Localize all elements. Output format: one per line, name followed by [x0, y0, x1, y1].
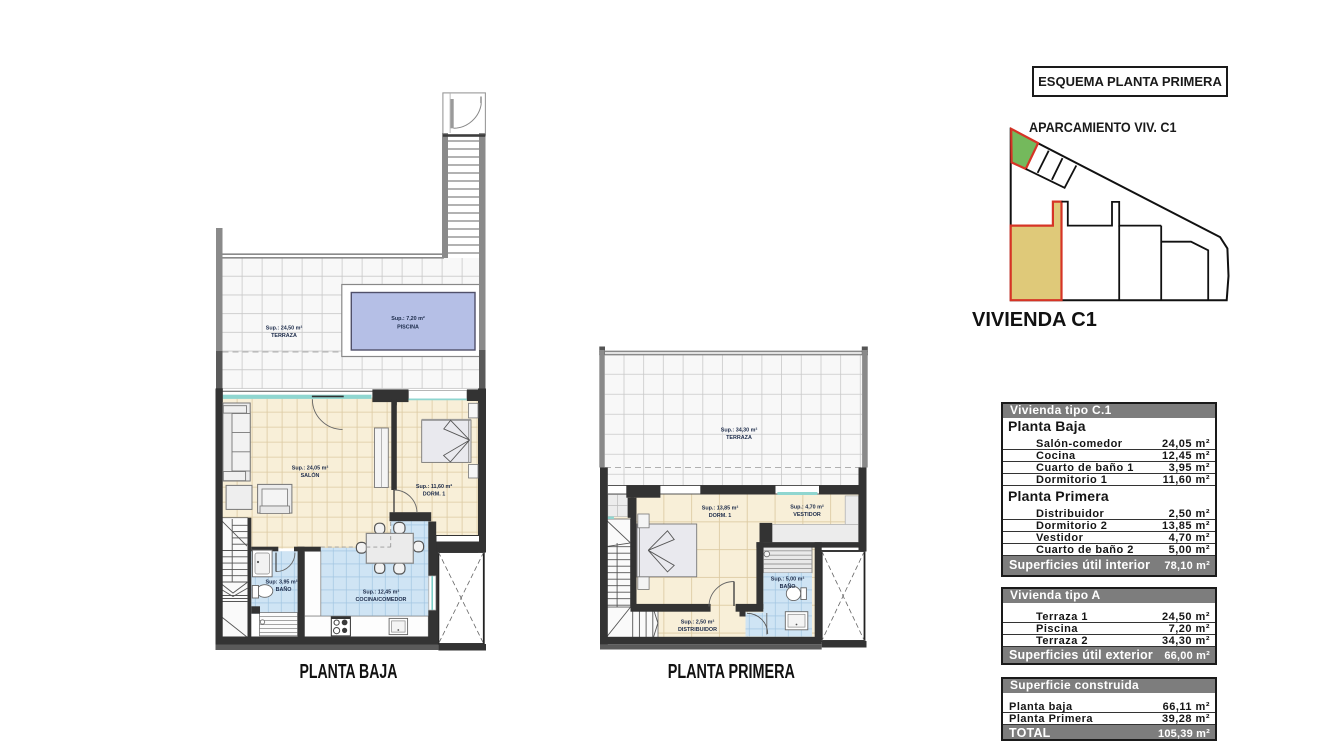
svg-text:Sup.: 5,00 m²: Sup.: 5,00 m²: [771, 577, 805, 583]
svg-text:PISCINA: PISCINA: [397, 325, 419, 331]
svg-text:DORM. 1: DORM. 1: [709, 513, 731, 519]
svg-text:Sup.: 24,50 m²: Sup.: 24,50 m²: [266, 326, 303, 332]
svg-text:DORM. 1: DORM. 1: [423, 492, 445, 498]
svg-text:Sup.: 34,30 m²: Sup.: 34,30 m²: [721, 428, 758, 434]
svg-text:Sup.: 12,45 m²: Sup.: 12,45 m²: [363, 590, 400, 596]
svg-text:BAÑO: BAÑO: [780, 583, 796, 590]
svg-text:VESTIDOR: VESTIDOR: [793, 512, 821, 518]
svg-text:DISTRIBUIDOR: DISTRIBUIDOR: [678, 627, 717, 633]
svg-text:Sup: 3,95 m²: Sup: 3,95 m²: [265, 580, 297, 586]
svg-text:Sup.: 11,60 m²: Sup.: 11,60 m²: [416, 484, 452, 490]
svg-text:SALÓN: SALÓN: [301, 471, 320, 479]
svg-text:COCINA/COMEDOR: COCINA/COMEDOR: [356, 597, 407, 603]
svg-text:TERRAZA: TERRAZA: [271, 333, 297, 339]
svg-text:TERRAZA: TERRAZA: [726, 435, 752, 441]
svg-text:Sup.: 13,85 m²: Sup.: 13,85 m²: [702, 506, 739, 512]
svg-text:Sup.: 24,05 m²: Sup.: 24,05 m²: [292, 466, 329, 472]
svg-text:Sup.: 2,50 m²: Sup.: 2,50 m²: [681, 620, 715, 626]
svg-text:Sup.: 7,20 m²: Sup.: 7,20 m²: [391, 316, 425, 322]
svg-text:Sup.: 4,70 m²: Sup.: 4,70 m²: [790, 505, 824, 511]
svg-text:BAÑO: BAÑO: [276, 586, 292, 593]
